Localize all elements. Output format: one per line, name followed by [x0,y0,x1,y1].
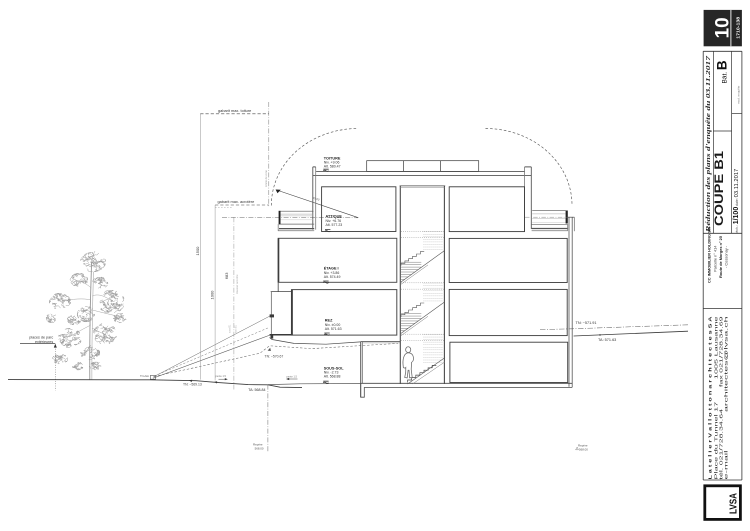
svg-text:Alt. 574.49: Alt. 574.49 [324,275,341,279]
svg-text:CC IMMOBILIER HOLDING SA: CC IMMOBILIER HOLDING SA [707,227,712,283]
svg-text:éch.: 1/100 date: 03.11.2017: éch.: 1/100 date: 03.11.2017 [733,169,740,233]
svg-text:Limite de zone: Limite de zone [264,170,268,187]
svg-text:mod. enquête: mod. enquête [736,85,740,104]
svg-text:e-mail architectes: e-mail architectes@lvsa.ch [724,315,729,480]
svg-text:TN+bât.: TN+bât. [140,374,150,378]
svg-text:sous B1: sous B1 [230,324,232,333]
svg-text:pente 1.5: pente 1.5 [216,375,227,378]
svg-text:Alt. 568.88: Alt. 568.88 [324,375,341,379]
svg-text:Parcelle n° 414: Parcelle n° 414 [713,245,718,272]
svg-text:LVSA: LVSA [729,493,740,514]
svg-text:1000: 1000 [210,290,215,300]
svg-text:Alt. 580.47: Alt. 580.47 [324,165,341,169]
svg-text:1710-138: 1710-138 [735,16,741,38]
svg-text:TA: 571.63: TA: 571.63 [598,338,616,342]
svg-text:683: 683 [224,272,229,279]
svg-text:acro B1: acro B1 [235,324,238,333]
svg-text:L a t e l i e r V a l l o t: L a t e l i e r V a l l o t t o n a r c … [707,315,712,479]
svg-text:COUPE B1: COUPE B1 [712,151,726,226]
svg-text:1500: 1500 [195,246,200,256]
svg-text:Hauteur acrotère: Hauteur acrotère [235,274,239,294]
svg-text:TN: ~569.13: TN: ~569.13 [183,382,202,386]
svg-text:TA: 568.84: TA: 568.84 [248,388,265,392]
svg-text:TN: ~571.91: TN: ~571.91 [576,321,597,325]
svg-text:Alt. 577.23: Alt. 577.23 [326,223,343,227]
svg-text:gabarit max. toiture: gabarit max. toiture [218,108,251,113]
svg-text:10: 10 [713,17,734,38]
svg-text:gabarit max. acrotère: gabarit max. acrotère [218,199,255,204]
svg-text:- Cossonay -: - Cossonay - [723,245,728,268]
svg-text:568.00: 568.00 [255,447,264,451]
svg-text:Réduction des plans d'enquête: Réduction des plans d'enquête du 03.11.2… [705,55,712,234]
svg-text:568.00: 568.00 [579,448,588,452]
svg-text:Alt. 571.63: Alt. 571.63 [325,327,342,331]
svg-text:TN: ~570.67: TN: ~570.67 [265,354,284,358]
svg-text:pente 1.5: pente 1.5 [287,375,298,378]
svg-text:places de parc: places de parc [29,336,53,340]
